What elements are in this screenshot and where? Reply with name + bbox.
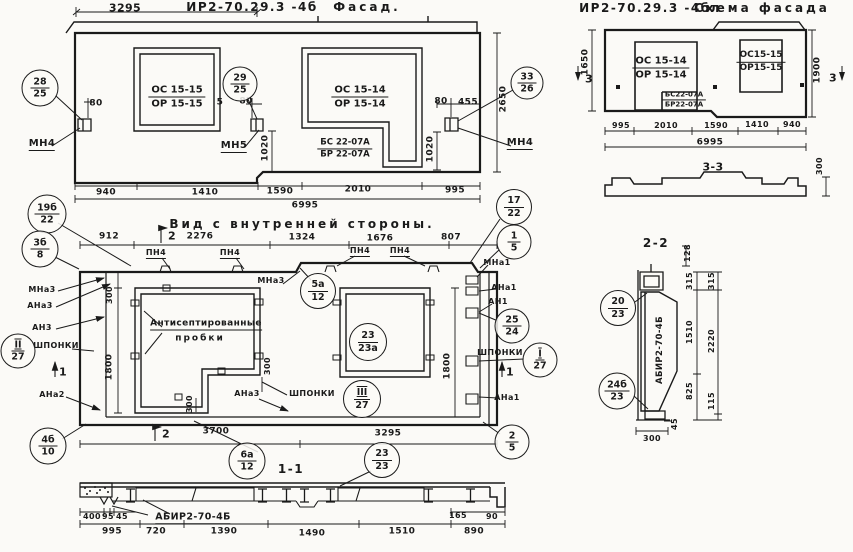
anchor-an1: АН1	[488, 298, 508, 306]
dim-45b: 45	[671, 418, 679, 430]
panel-mark: БР 22-07А	[320, 150, 369, 160]
panel-mark: ОС 15-15	[148, 84, 205, 98]
panel-mark: ОС 15-14	[331, 84, 388, 98]
dim-455: 455	[458, 99, 478, 108]
panel-mark: ОР 15-15	[151, 99, 202, 110]
section-3-3-title: 3-3	[702, 162, 723, 173]
callout-top: III	[354, 387, 371, 399]
dim-1800-right: 1800	[444, 353, 453, 380]
callout-top: 6а	[237, 449, 256, 461]
dim-1020-right: 1020	[427, 136, 436, 163]
callout-bottom: 10	[41, 447, 54, 458]
dim-1900: 1900	[814, 57, 823, 84]
callout-bottom: 26	[520, 84, 533, 95]
dim-b1390: 1390	[211, 528, 238, 537]
section-1-1-title: 1-1	[278, 463, 304, 475]
callout-bottom: 22	[40, 215, 53, 226]
dim-b1490: 1490	[299, 530, 326, 539]
panel-mark: ОС15-15	[736, 50, 785, 63]
dim-s1410: 1410	[745, 121, 769, 129]
label-shponki-right: ШПОНКИ	[477, 349, 523, 357]
label-shponki-left: ШПОНКИ	[33, 342, 79, 350]
panel-mark: БС22-07А	[662, 90, 706, 100]
dim-2276: 2276	[187, 233, 214, 242]
dim-315b: 315	[708, 272, 716, 290]
callout-28-25: 2825	[22, 70, 59, 107]
callout-bottom: 27	[533, 361, 546, 372]
callout-bottom: 12	[240, 462, 253, 473]
callout-bottom: 5	[511, 243, 518, 254]
callout-bottom: 27	[355, 400, 368, 411]
panel-mark: ОР15-15	[739, 63, 782, 73]
dim-2010: 2010	[345, 186, 372, 195]
dim-315a: 315	[686, 272, 694, 290]
dim-s995: 995	[612, 122, 630, 130]
callout-bottom: 8	[37, 250, 44, 261]
callout-top: 24б	[604, 379, 630, 391]
callout-33-26: 3326	[511, 67, 544, 100]
section-mark-2-bottom: 2	[162, 429, 170, 440]
anchor-mna1: МНа1	[483, 259, 510, 267]
dim-1324: 1324	[289, 234, 316, 243]
schema-title: Схема фасада	[694, 2, 830, 14]
callout-1-5: 15	[497, 225, 532, 260]
drawing-linework	[0, 0, 853, 552]
section-mark-1-right: 1	[506, 367, 514, 378]
section-mark-2-top: 2	[168, 231, 176, 242]
anchor-ana1-bottom: АНа1	[494, 394, 519, 402]
dim-90: 90	[486, 513, 498, 521]
callout-5a-12: 5а12	[300, 273, 336, 309]
anchor-ana1-top: АНа1	[491, 284, 516, 292]
callout-top: 17	[504, 195, 523, 207]
dim-b1510: 1510	[389, 528, 416, 537]
callout-bottom: 23	[611, 309, 624, 320]
schema-panel-label: БС22-07А БР22-07А	[662, 90, 706, 109]
callout-top: 20	[608, 296, 627, 308]
note-plugs: пробки	[175, 335, 225, 344]
anchor-pn4-2: ПН4	[220, 249, 240, 259]
dim-45: 45	[116, 513, 128, 521]
facade-window2-label: ОС 15-14 ОР 15-14	[331, 84, 388, 111]
dim-facade-3295: 3295	[109, 3, 141, 14]
callout-top: 23	[358, 330, 377, 342]
anchor-mna3-left: МНа3	[28, 286, 55, 294]
anchor-pn4-1: ПН4	[146, 249, 166, 259]
facade-code: ИР2-70.29.3 -4б	[186, 1, 317, 13]
dim-s940: 940	[783, 121, 801, 129]
callout-II-27: II27	[1, 334, 36, 369]
dim-995: 995	[445, 187, 465, 196]
facade-panel-label: БС 22-07А БР 22-07А	[317, 137, 372, 160]
callout-top: 25	[502, 314, 521, 326]
dim-1676: 1676	[367, 235, 394, 244]
blueprint-canvas: ИР2-70.29.3 -4б Фасад. 3295 ОС 15-15 ОР …	[0, 0, 853, 552]
section-mark-1-left: 1	[59, 367, 67, 378]
dim-1590: 1590	[267, 188, 294, 197]
dim-95: 95	[102, 513, 114, 521]
panel-mark: ОС 15-14	[632, 55, 689, 69]
dim-1410: 1410	[192, 189, 219, 198]
anchor-pn4-3: ПН4	[350, 247, 370, 257]
dim-s300: 300	[816, 157, 824, 175]
anchor-ana3-left: АНа3	[27, 302, 52, 310]
callout-25-24: 2524	[495, 309, 530, 344]
anchor-mn5: МН5	[221, 141, 247, 153]
panel-mark: ОР 15-14	[334, 99, 385, 110]
section-2-2-title: 2-2	[643, 237, 669, 249]
callout-4b-10: 4б10	[30, 428, 67, 465]
dim-912: 912	[99, 233, 119, 242]
dim-115: 115	[708, 392, 716, 410]
callout-top: 28	[30, 76, 49, 88]
beam-label-2-2: АБИР2-70-4Б	[656, 316, 665, 384]
dim-300b: 300	[643, 435, 661, 443]
dim-807: 807	[441, 234, 461, 243]
dim-b995: 995	[102, 528, 122, 537]
callout-17-22: 1722	[496, 189, 532, 225]
dim-2650: 2650	[500, 86, 509, 113]
dim-2220: 2220	[708, 329, 716, 353]
dim-300-left: 300	[106, 286, 114, 304]
dim-5: 5	[217, 99, 224, 108]
callout-top: 33	[517, 71, 536, 83]
callout-bottom: 5	[509, 443, 516, 454]
callout-bottom: 24	[505, 327, 518, 338]
callout-29-25: 2925	[223, 67, 258, 102]
anchor-mn4-left: МН4	[29, 139, 55, 151]
beam-label-1-1: АБИР2-70-4Б	[155, 512, 230, 524]
callout-2-5: 25	[495, 425, 530, 460]
dim-300-step2: 300	[186, 395, 194, 413]
facade-window1-label: ОС 15-15 ОР 15-15	[148, 84, 205, 111]
panel-mark: ОР 15-14	[635, 70, 686, 81]
dim-6995: 6995	[292, 202, 319, 211]
anchor-ana3-bottom: АНа3	[234, 390, 259, 398]
callout-bottom: 27	[11, 352, 24, 363]
dim-s2010: 2010	[654, 122, 678, 130]
dim-80-right: 80	[434, 98, 447, 107]
facade-title: Фасад.	[333, 1, 400, 13]
callout-bottom: 23	[610, 392, 623, 403]
callout-bottom: 23	[375, 461, 388, 472]
schema-window1-label: ОС 15-14 ОР 15-14	[632, 55, 689, 82]
callout-6a-12: 6а12	[229, 443, 266, 480]
anchor-an3: АН3	[32, 324, 52, 332]
callout-I-27: I27	[523, 343, 558, 378]
dim-b720: 720	[146, 528, 166, 537]
dim-3295b: 3295	[375, 430, 402, 439]
callout-bottom: 12	[311, 292, 324, 303]
anchor-mna3-mid: МНа3	[257, 277, 284, 285]
callout-top: 3б	[30, 237, 49, 249]
callout-top: 23	[372, 448, 391, 460]
dim-128: 128	[684, 244, 692, 262]
dim-s1590: 1590	[704, 122, 728, 130]
dim-1650: 1650	[582, 49, 591, 76]
callout-top: 5а	[308, 279, 327, 291]
dim-300-step1: 300	[264, 357, 272, 375]
callout-top: 4б	[38, 434, 57, 446]
callout-bottom: 25	[233, 85, 246, 96]
dim-v1510: 1510	[686, 320, 694, 344]
section-mark-3-left: 3	[585, 74, 593, 85]
dim-165: 165	[449, 512, 467, 520]
panel-mark: БС 22-07А	[317, 137, 372, 149]
anchor-mn4-right: МН4	[507, 138, 533, 150]
callout-top: 1	[508, 230, 521, 242]
callout-19b-22: 19б22	[28, 195, 67, 234]
callout-23-23: 2323	[364, 442, 400, 478]
label-shponki-bottom: ШПОНКИ	[289, 390, 335, 398]
panel-mark: БР22-07А	[665, 101, 703, 109]
section-mark-3-right: 3	[829, 73, 837, 84]
dim-1020-left: 1020	[262, 135, 271, 162]
note-antiseptic: Антисептированные	[150, 320, 262, 331]
callout-top: 2	[506, 430, 519, 442]
callout-top: II	[11, 339, 24, 351]
dim-80-left: 80	[89, 100, 102, 109]
dim-s6995: 6995	[697, 139, 724, 148]
anchor-pn4-4: ПН4	[390, 247, 410, 257]
callout-20-23: 2023	[600, 290, 636, 326]
callout-top: I	[535, 348, 545, 360]
callout-24b-23: 24б23	[599, 373, 636, 410]
callout-top: 29	[230, 72, 249, 84]
dim-3700: 3700	[203, 428, 230, 437]
dim-1800-left: 1800	[106, 354, 115, 381]
callout-top: 19б	[34, 202, 60, 214]
callout-bottom: 22	[507, 208, 520, 219]
anchor-ana2: АНа2	[39, 391, 64, 399]
callout-bottom: 25	[33, 89, 46, 100]
callout-III-27: III27	[343, 380, 381, 418]
dim-400: 400	[83, 513, 101, 521]
inner-view-title: Вид с внутренней стороны.	[169, 218, 434, 230]
dim-940: 940	[96, 189, 116, 198]
dim-b890: 890	[464, 528, 484, 537]
callout-3b-8: 3б8	[22, 231, 59, 268]
callout-23-23a: 2323а	[349, 323, 387, 361]
schema-window2-label: ОС15-15 ОР15-15	[736, 50, 785, 74]
callout-bottom: 23а	[358, 343, 378, 354]
dim-825: 825	[686, 382, 694, 400]
